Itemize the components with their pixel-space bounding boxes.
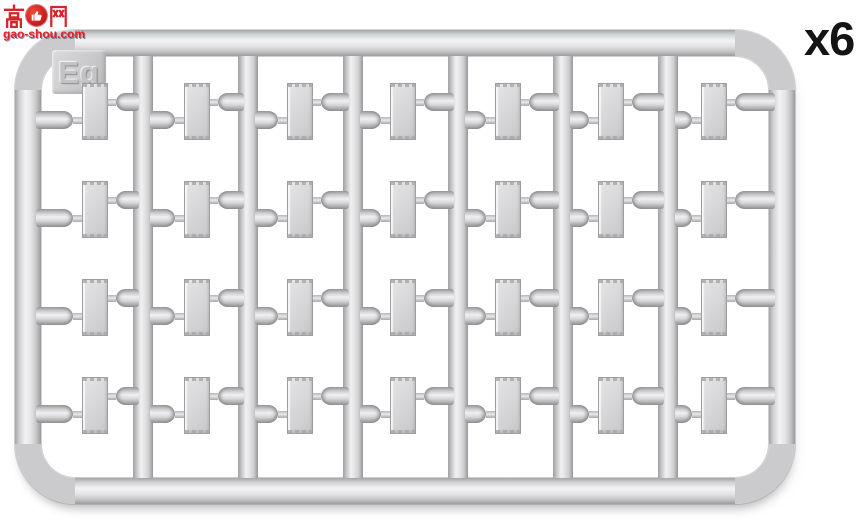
runner-arm-left xyxy=(150,209,184,227)
sprue-gate-stub xyxy=(416,393,424,400)
runner-arm-left xyxy=(675,209,701,227)
sprue-gate-bulb xyxy=(529,289,559,307)
sprue-gate-stub xyxy=(108,197,116,204)
sprue-gate-stub xyxy=(486,215,495,222)
sprue-gate-stub xyxy=(521,393,529,400)
runner-arm-right xyxy=(210,387,244,405)
thumbs-up-icon xyxy=(26,5,47,26)
runner-arm-left xyxy=(675,307,701,325)
runner-arm-left xyxy=(36,307,82,325)
sprue-gate-stub xyxy=(313,295,321,302)
runner-arm-right xyxy=(727,289,775,307)
quantity-label: x6 xyxy=(804,15,854,62)
part-plate xyxy=(495,181,521,238)
sprue-gate-stub xyxy=(278,215,287,222)
sprue-gate-stub xyxy=(486,117,495,124)
sprue-gate-bulb xyxy=(465,209,486,227)
sprue-gate-stub xyxy=(589,215,598,222)
runner-arm-left xyxy=(255,405,287,423)
sprue-gate-stub xyxy=(692,215,701,222)
runner-arm-right xyxy=(416,289,454,307)
runner-arm-right xyxy=(210,93,244,111)
sprue-gate-stub xyxy=(313,197,321,204)
sprue-gate-stub xyxy=(278,313,287,320)
sprue-gate-stub xyxy=(521,197,529,204)
runner-arm-right xyxy=(727,93,775,111)
sprue-gate-bulb xyxy=(255,209,278,227)
runner-arm-right xyxy=(108,191,139,209)
part-plate xyxy=(82,181,108,238)
part-plate xyxy=(82,377,108,434)
sprue-gate-bulb xyxy=(116,289,139,307)
runner-arm-right xyxy=(313,289,349,307)
part-plate xyxy=(390,83,416,140)
sprue-gate-bulb xyxy=(360,405,381,423)
sprue-gate-bulb xyxy=(529,387,559,405)
sprue-gate-bulb xyxy=(321,289,349,307)
sprue-gate-stub xyxy=(486,313,495,320)
sprue-gate-stub xyxy=(727,295,735,302)
sprue-gate-bulb xyxy=(36,209,73,227)
sprue-gate-bulb xyxy=(465,111,486,129)
sprue-gate-stub xyxy=(175,117,184,124)
part-plate xyxy=(184,279,210,336)
part-plate xyxy=(184,377,210,434)
sprue-gate-bulb xyxy=(116,93,139,111)
runner-arm-right xyxy=(727,191,775,209)
runner-arm-right xyxy=(624,191,664,209)
part-plate xyxy=(390,181,416,238)
part-plate xyxy=(390,279,416,336)
sprue-gate-bulb xyxy=(632,387,664,405)
watermark-logo-row xyxy=(3,3,75,28)
sprue-gate-stub xyxy=(589,313,598,320)
runner-arm-right xyxy=(727,387,775,405)
sprue-gate-bulb xyxy=(570,111,589,129)
runner-arm-left xyxy=(465,307,495,325)
sprue-gate-stub xyxy=(108,393,116,400)
runner-arm-left xyxy=(465,405,495,423)
runner-arm-right xyxy=(624,93,664,111)
runner-arm-right xyxy=(521,191,559,209)
sprue-gate-bulb xyxy=(465,307,486,325)
sprue-gate-bulb xyxy=(218,289,244,307)
sprue-gate-stub xyxy=(727,197,735,204)
runner-arm-left xyxy=(150,111,184,129)
part-plate xyxy=(701,83,727,140)
runner-arm-right xyxy=(210,191,244,209)
part-plate xyxy=(598,377,624,434)
sprue-gate-stub xyxy=(381,215,390,222)
runner-arm-right xyxy=(313,191,349,209)
sprue-gate-stub xyxy=(692,117,701,124)
sprue-gate-stub xyxy=(381,117,390,124)
runner-arm-left xyxy=(36,209,82,227)
runner-arm-right xyxy=(624,289,664,307)
sprue-gate-stub xyxy=(73,313,82,320)
sprue-gate-bulb xyxy=(360,209,381,227)
runner-arm-left xyxy=(675,405,701,423)
sprue-gate-bulb xyxy=(465,405,486,423)
sprue-gate-bulb xyxy=(424,387,454,405)
sprue-gate-bulb xyxy=(632,289,664,307)
sprue-gate-stub xyxy=(73,411,82,418)
part-plate xyxy=(184,83,210,140)
sprue-gate-stub xyxy=(313,99,321,106)
sprue-gate-stub xyxy=(313,393,321,400)
watermark-char-gao xyxy=(3,4,25,28)
sprue-gate-stub xyxy=(521,99,529,106)
part-plate xyxy=(287,279,313,336)
sprue-gate-bulb xyxy=(570,307,589,325)
sprue-gate-stub xyxy=(381,411,390,418)
sprue-gate-bulb xyxy=(218,387,244,405)
runner-arm-left xyxy=(465,209,495,227)
sprue-gate-bulb xyxy=(255,307,278,325)
sprue-gate-bulb xyxy=(529,93,559,111)
runner-arm-left xyxy=(150,307,184,325)
sprue-gate-bulb xyxy=(321,387,349,405)
sprue-gate-stub xyxy=(624,99,632,106)
sprue-gate-stub xyxy=(210,99,218,106)
runner-arm-left xyxy=(255,111,287,129)
sprue-photo: gao-shou.com x6 Eg xyxy=(0,0,867,520)
sprue-gate-bulb xyxy=(632,191,664,209)
sprue-gate-bulb xyxy=(321,191,349,209)
sprue-gate-bulb xyxy=(675,405,692,423)
sprue-gate-bulb xyxy=(36,111,73,129)
sprue-gate-stub xyxy=(416,295,424,302)
sprue-frame-top-bar xyxy=(75,30,735,56)
runner-arm-left xyxy=(675,111,701,129)
sprue-gate-stub xyxy=(381,313,390,320)
sprue-gate-stub xyxy=(486,411,495,418)
runner-arm-right xyxy=(521,93,559,111)
runner-arm-right xyxy=(416,191,454,209)
sprue-gate-bulb xyxy=(570,209,589,227)
sprue-gate-bulb xyxy=(116,387,139,405)
sprue-gate-bulb xyxy=(735,93,775,111)
sprue-gate-bulb xyxy=(360,307,381,325)
sprue-gate-stub xyxy=(175,313,184,320)
part-plate xyxy=(390,377,416,434)
sprue-gate-bulb xyxy=(36,405,73,423)
runner-arm-right xyxy=(313,93,349,111)
watermark-char-wang xyxy=(48,4,69,27)
sprue-gate-bulb xyxy=(632,93,664,111)
sprue-gate-bulb xyxy=(675,111,692,129)
runner-arm-right xyxy=(521,289,559,307)
sprue-gate-bulb xyxy=(529,191,559,209)
part-plate xyxy=(287,83,313,140)
sprue-gate-bulb xyxy=(424,93,454,111)
runner-arm-right xyxy=(210,289,244,307)
sprue-gate-bulb xyxy=(735,289,775,307)
sprue-gate-bulb xyxy=(735,387,775,405)
sprue-gate-stub xyxy=(210,295,218,302)
runner-arm-right xyxy=(108,387,139,405)
runner-arm-right xyxy=(108,93,139,111)
part-plate xyxy=(701,377,727,434)
sprue-gate-bulb xyxy=(735,191,775,209)
sprue-gate-bulb xyxy=(675,307,692,325)
sprue-gate-stub xyxy=(416,99,424,106)
runner-arm-left xyxy=(360,209,390,227)
runner-arm-right xyxy=(313,387,349,405)
runner-arm-right xyxy=(108,289,139,307)
sprue-gate-stub xyxy=(589,411,598,418)
sprue-gate-stub xyxy=(73,215,82,222)
runner-arm-left xyxy=(36,405,82,423)
part-plate xyxy=(701,181,727,238)
sprue-gate-stub xyxy=(175,411,184,418)
sprue-gate-stub xyxy=(624,295,632,302)
sprue-gate-stub xyxy=(210,197,218,204)
sprue-gate-stub xyxy=(210,393,218,400)
sprue-gate-bulb xyxy=(150,307,175,325)
sprue-gate-bulb xyxy=(36,307,73,325)
sprue-gate-stub xyxy=(73,117,82,124)
sprue-gate-bulb xyxy=(424,289,454,307)
sprue-gate-bulb xyxy=(675,209,692,227)
sprue-gate-stub xyxy=(416,197,424,204)
part-plate xyxy=(598,279,624,336)
runner-arm-left xyxy=(255,209,287,227)
sprue-gate-stub xyxy=(624,197,632,204)
sprue-gate-stub xyxy=(278,411,287,418)
runner-arm-left xyxy=(150,405,184,423)
runner-arm-left xyxy=(255,307,287,325)
part-plate xyxy=(495,279,521,336)
sprue-gate-stub xyxy=(727,99,735,106)
sprue-frame-bottom-bar xyxy=(75,478,735,504)
part-plate xyxy=(701,279,727,336)
runner-arm-left xyxy=(360,405,390,423)
runner-arm-left xyxy=(360,111,390,129)
watermark-url: gao-shou.com xyxy=(3,28,75,41)
part-plate xyxy=(82,279,108,336)
sprue-gate-stub xyxy=(692,411,701,418)
sprue-gate-bulb xyxy=(424,191,454,209)
runner-arm-left xyxy=(570,111,598,129)
part-plate xyxy=(184,181,210,238)
sprue-gate-stub xyxy=(589,117,598,124)
sprue-gate-bulb xyxy=(150,111,175,129)
runner-arm-right xyxy=(624,387,664,405)
sprue-gate-bulb xyxy=(150,209,175,227)
part-plate xyxy=(495,83,521,140)
part-plate xyxy=(82,83,108,140)
runner-arm-left xyxy=(570,307,598,325)
sprue-gate-stub xyxy=(278,117,287,124)
sprue-gate-stub xyxy=(521,295,529,302)
sprue-gate-bulb xyxy=(570,405,589,423)
runner-arm-right xyxy=(416,93,454,111)
sprue-gate-bulb xyxy=(150,405,175,423)
sprue-gate-stub xyxy=(108,295,116,302)
runner-arm-left xyxy=(465,111,495,129)
runner-arm-right xyxy=(416,387,454,405)
sprue-gate-bulb xyxy=(255,111,278,129)
sprue-gate-stub xyxy=(624,393,632,400)
runner-arm-left xyxy=(36,111,82,129)
sprue-gate-bulb xyxy=(218,93,244,111)
part-plate xyxy=(598,181,624,238)
part-plate xyxy=(287,377,313,434)
sprue-gate-bulb xyxy=(218,191,244,209)
watermark-logo: gao-shou.com xyxy=(3,3,75,41)
runner-arm-left xyxy=(570,209,598,227)
part-plate xyxy=(495,377,521,434)
sprue-gate-bulb xyxy=(321,93,349,111)
runner-arm-right xyxy=(521,387,559,405)
sprue-gate-stub xyxy=(108,99,116,106)
part-plate xyxy=(598,83,624,140)
sprue-gate-bulb xyxy=(360,111,381,129)
runner-arm-left xyxy=(570,405,598,423)
sprue-gate-stub xyxy=(727,393,735,400)
sprue-frame-left-bar xyxy=(15,90,41,444)
sprue-gate-stub xyxy=(175,215,184,222)
sprue-gate-stub xyxy=(692,313,701,320)
runner-arm-left xyxy=(360,307,390,325)
sprue-gate-bulb xyxy=(255,405,278,423)
sprue-gate-bulb xyxy=(116,191,139,209)
part-plate xyxy=(287,181,313,238)
